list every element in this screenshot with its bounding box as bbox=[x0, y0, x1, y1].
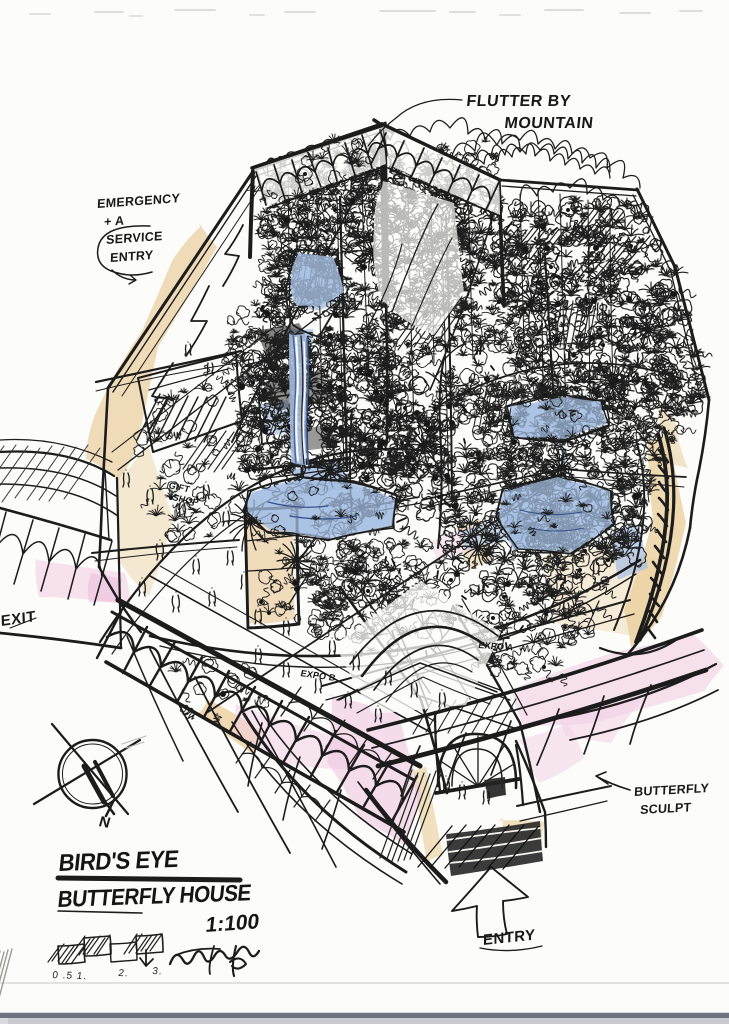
svg-text:2.: 2. bbox=[118, 968, 130, 979]
svg-text:+ A: + A bbox=[104, 214, 125, 229]
svg-text:1:100: 1:100 bbox=[204, 910, 260, 937]
svg-text:3.: 3. bbox=[152, 966, 164, 977]
svg-text:0 .5 1.: 0 .5 1. bbox=[52, 970, 88, 982]
svg-text:SCULPT: SCULPT bbox=[640, 800, 692, 817]
svg-text:FLUTTER BY: FLUTTER BY bbox=[466, 92, 572, 110]
svg-text:MOUNTAIN: MOUNTAIN bbox=[504, 114, 595, 132]
svg-text:BIRD'S EYE: BIRD'S EYE bbox=[57, 845, 179, 876]
